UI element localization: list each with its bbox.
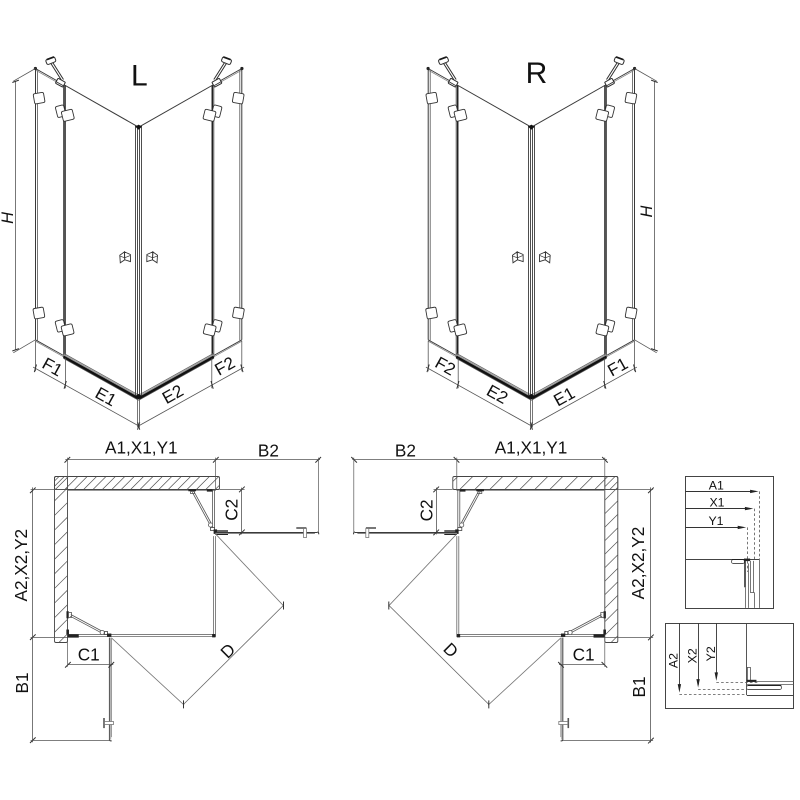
svg-text:B2: B2	[395, 440, 416, 460]
svg-text:L: L	[131, 60, 148, 93]
svg-text:C1: C1	[78, 644, 100, 664]
svg-text:Y2: Y2	[704, 646, 718, 661]
svg-text:A2,X2,Y2: A2,X2,Y2	[628, 527, 648, 600]
svg-text:C2: C2	[416, 499, 436, 521]
svg-text:X1: X1	[709, 496, 724, 510]
svg-text:A2,X2,Y2: A2,X2,Y2	[11, 529, 31, 602]
svg-text:F1: F1	[39, 353, 66, 380]
svg-text:B2: B2	[258, 440, 279, 460]
svg-text:D: D	[216, 639, 239, 662]
svg-text:F1: F1	[604, 353, 631, 380]
svg-text:C1: C1	[573, 644, 595, 664]
svg-text:H: H	[638, 205, 656, 217]
svg-text:A1,X1,Y1: A1,X1,Y1	[105, 438, 178, 458]
svg-text:B1: B1	[12, 672, 32, 693]
svg-text:A1: A1	[709, 478, 724, 492]
svg-text:D: D	[439, 638, 462, 661]
svg-text:H: H	[0, 212, 17, 224]
svg-text:Y1: Y1	[708, 514, 723, 528]
svg-text:C2: C2	[222, 499, 242, 521]
svg-text:X2: X2	[685, 648, 699, 663]
svg-text:B1: B1	[629, 676, 649, 697]
svg-text:A2: A2	[666, 653, 680, 668]
svg-text:R: R	[526, 57, 548, 90]
svg-text:A1,X1,Y1: A1,X1,Y1	[495, 438, 568, 458]
